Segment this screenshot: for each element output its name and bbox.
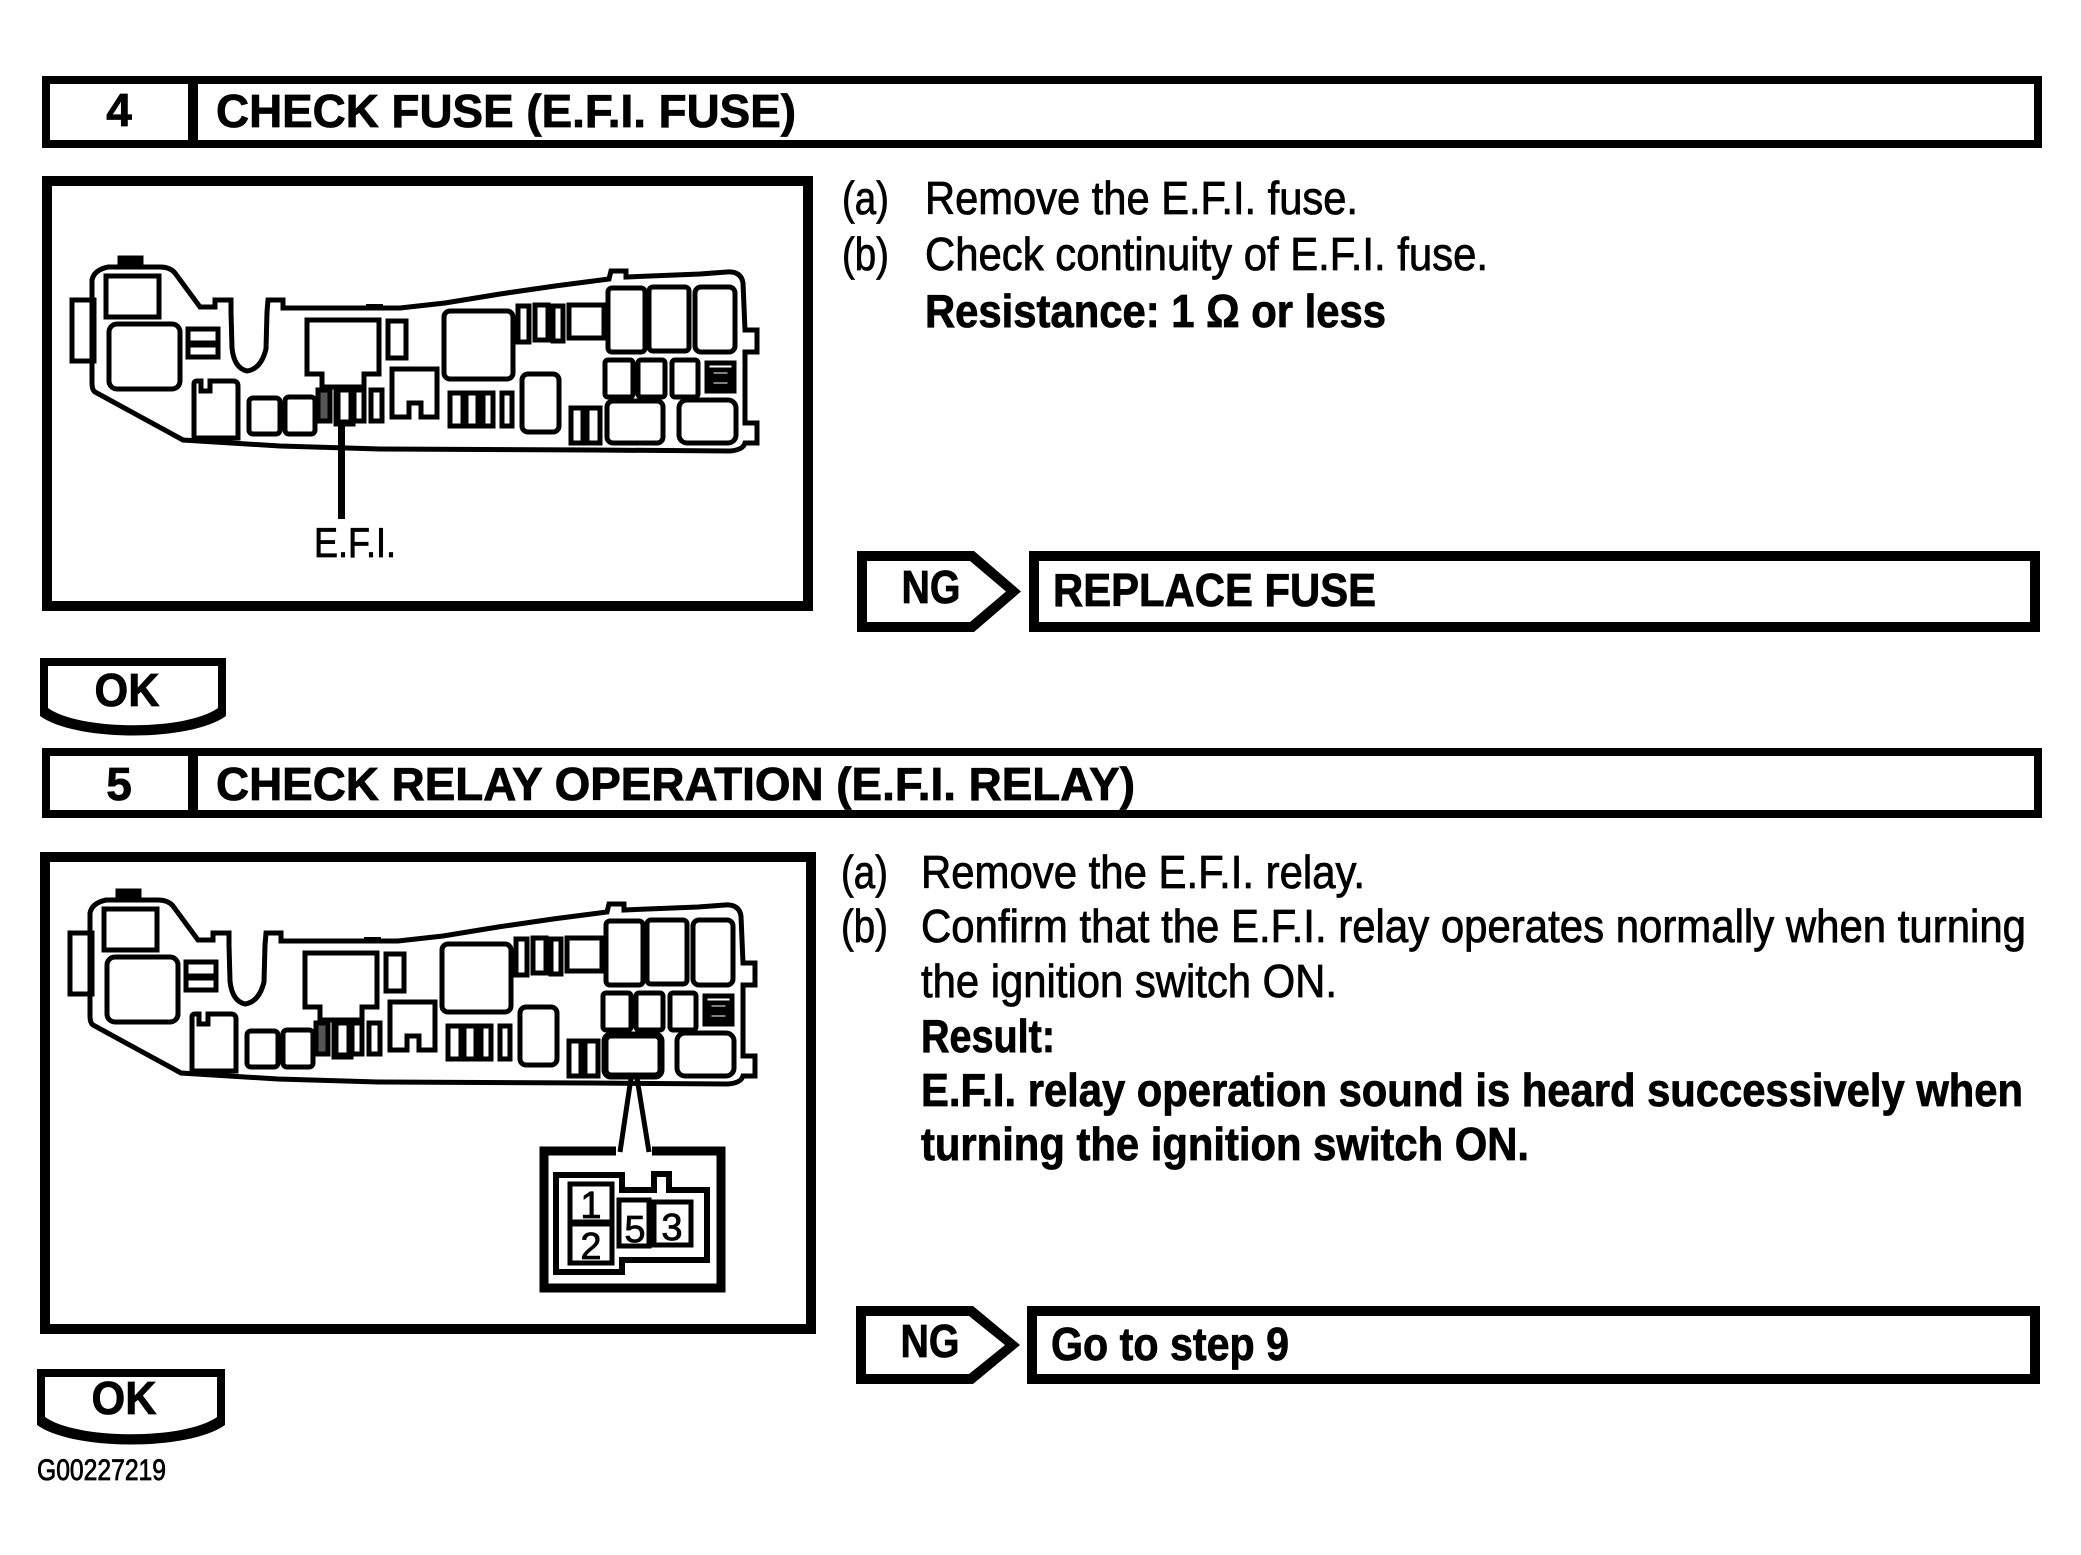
svg-text:5: 5: [624, 1209, 645, 1251]
svg-text:E.F.I.: E.F.I.: [314, 519, 396, 566]
svg-text:(b): (b): [842, 228, 889, 280]
svg-text:NG: NG: [901, 1315, 960, 1367]
svg-text:(b): (b): [841, 900, 888, 952]
svg-text:Confirm that the E.F.I. relay: Confirm that the E.F.I. relay operates n…: [921, 900, 2026, 952]
svg-text:(a): (a): [842, 172, 889, 224]
svg-text:4: 4: [106, 84, 132, 136]
svg-text:Result:: Result:: [921, 1010, 1055, 1062]
svg-text:OK: OK: [92, 1372, 157, 1424]
svg-text:Check continuity of E.F.I. fus: Check continuity of E.F.I. fuse.: [925, 228, 1488, 280]
svg-text:NG: NG: [902, 561, 961, 613]
svg-text:CHECK FUSE (E.F.I. FUSE): CHECK FUSE (E.F.I. FUSE): [216, 85, 796, 137]
svg-text:OK: OK: [95, 664, 160, 716]
svg-text:G00227219: G00227219: [37, 1454, 166, 1487]
svg-text:E.F.I. relay operation sound i: E.F.I. relay operation sound is heard su…: [921, 1064, 2023, 1116]
svg-text:Resistance: 1 Ω or less: Resistance: 1 Ω or less: [925, 285, 1386, 337]
svg-text:1: 1: [580, 1185, 601, 1227]
svg-text:3: 3: [661, 1207, 682, 1249]
svg-text:Remove the E.F.I. relay.: Remove the E.F.I. relay.: [921, 846, 1365, 898]
svg-text:2: 2: [580, 1226, 601, 1268]
svg-text:the ignition switch ON.: the ignition switch ON.: [921, 955, 1337, 1007]
svg-text:CHECK RELAY OPERATION (E.F.I.: CHECK RELAY OPERATION (E.F.I. RELAY): [216, 758, 1135, 810]
svg-text:turning the ignition switch ON: turning the ignition switch ON.: [921, 1118, 1529, 1170]
svg-text:5: 5: [106, 758, 132, 810]
svg-text:(a): (a): [841, 846, 888, 898]
svg-text:REPLACE FUSE: REPLACE FUSE: [1053, 564, 1376, 616]
svg-text:Remove the E.F.I. fuse.: Remove the E.F.I. fuse.: [925, 172, 1358, 224]
svg-text:Go to step 9: Go to step 9: [1051, 1318, 1289, 1370]
